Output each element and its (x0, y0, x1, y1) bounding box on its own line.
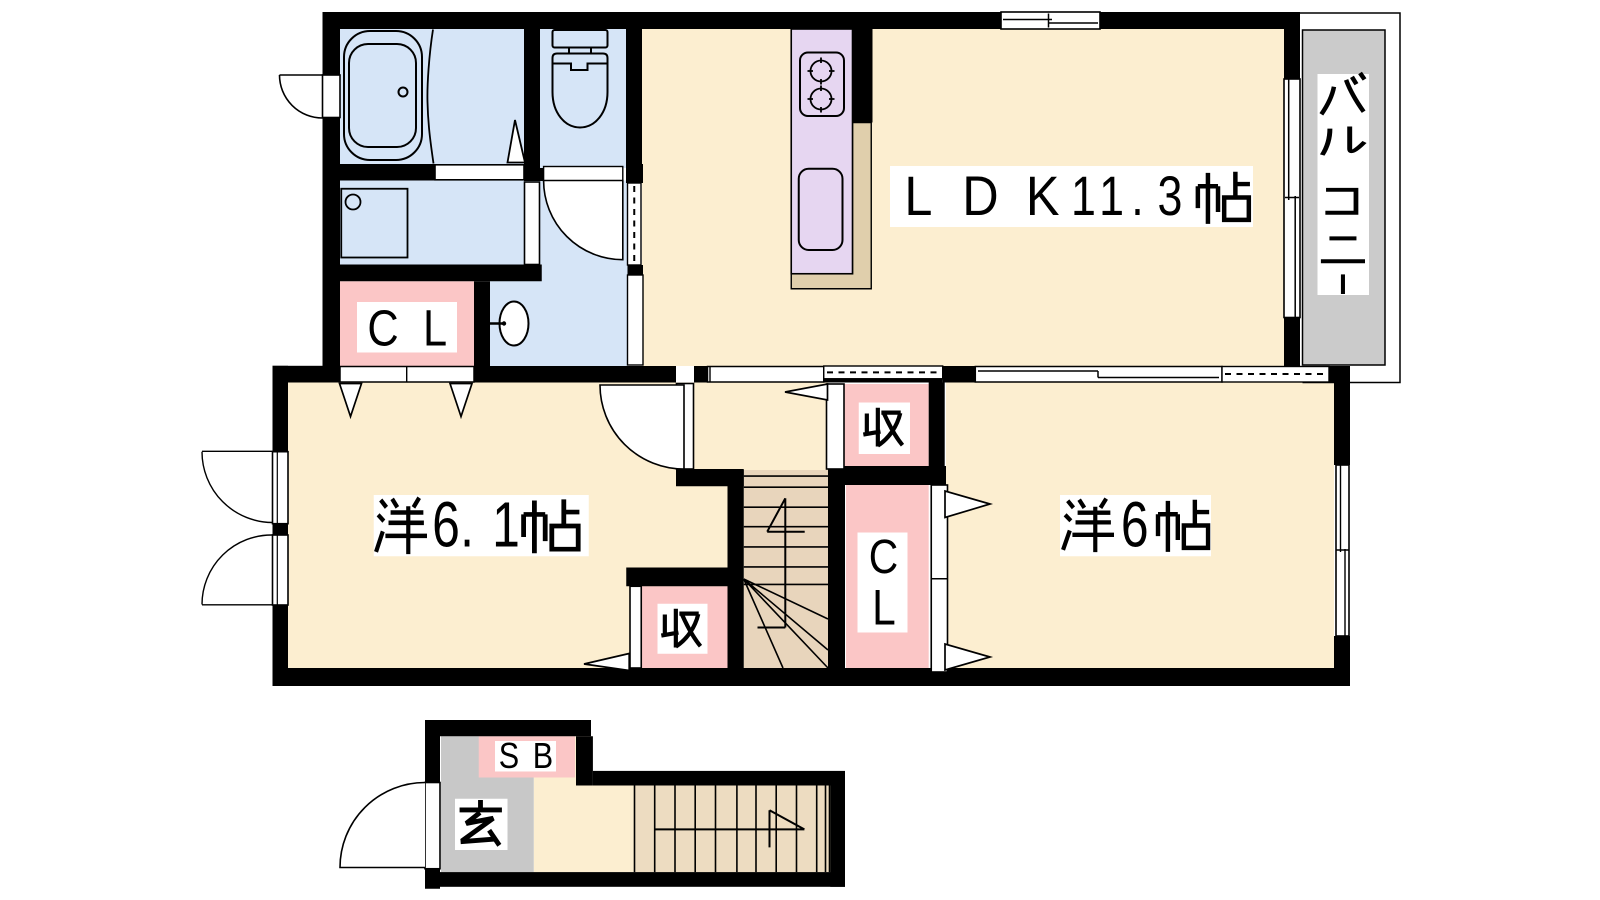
svg-text:D: D (962, 166, 998, 228)
svg-text:1: 1 (1099, 164, 1124, 227)
svg-text:.: . (460, 490, 474, 561)
svg-text:L: L (904, 166, 932, 228)
svg-text:L: L (423, 300, 447, 357)
svg-text:1: 1 (492, 490, 520, 561)
svg-text:S: S (499, 737, 519, 777)
svg-text:.: . (1131, 164, 1143, 227)
svg-text:L: L (872, 579, 896, 635)
svg-text:1: 1 (1071, 164, 1096, 227)
svg-text:C: C (367, 300, 398, 357)
svg-text:C: C (869, 531, 898, 584)
svg-text:3: 3 (1158, 164, 1183, 227)
svg-text:6: 6 (1121, 490, 1149, 561)
svg-text:B: B (533, 737, 553, 777)
svg-text:K: K (1026, 166, 1060, 228)
svg-text:6: 6 (432, 490, 460, 561)
